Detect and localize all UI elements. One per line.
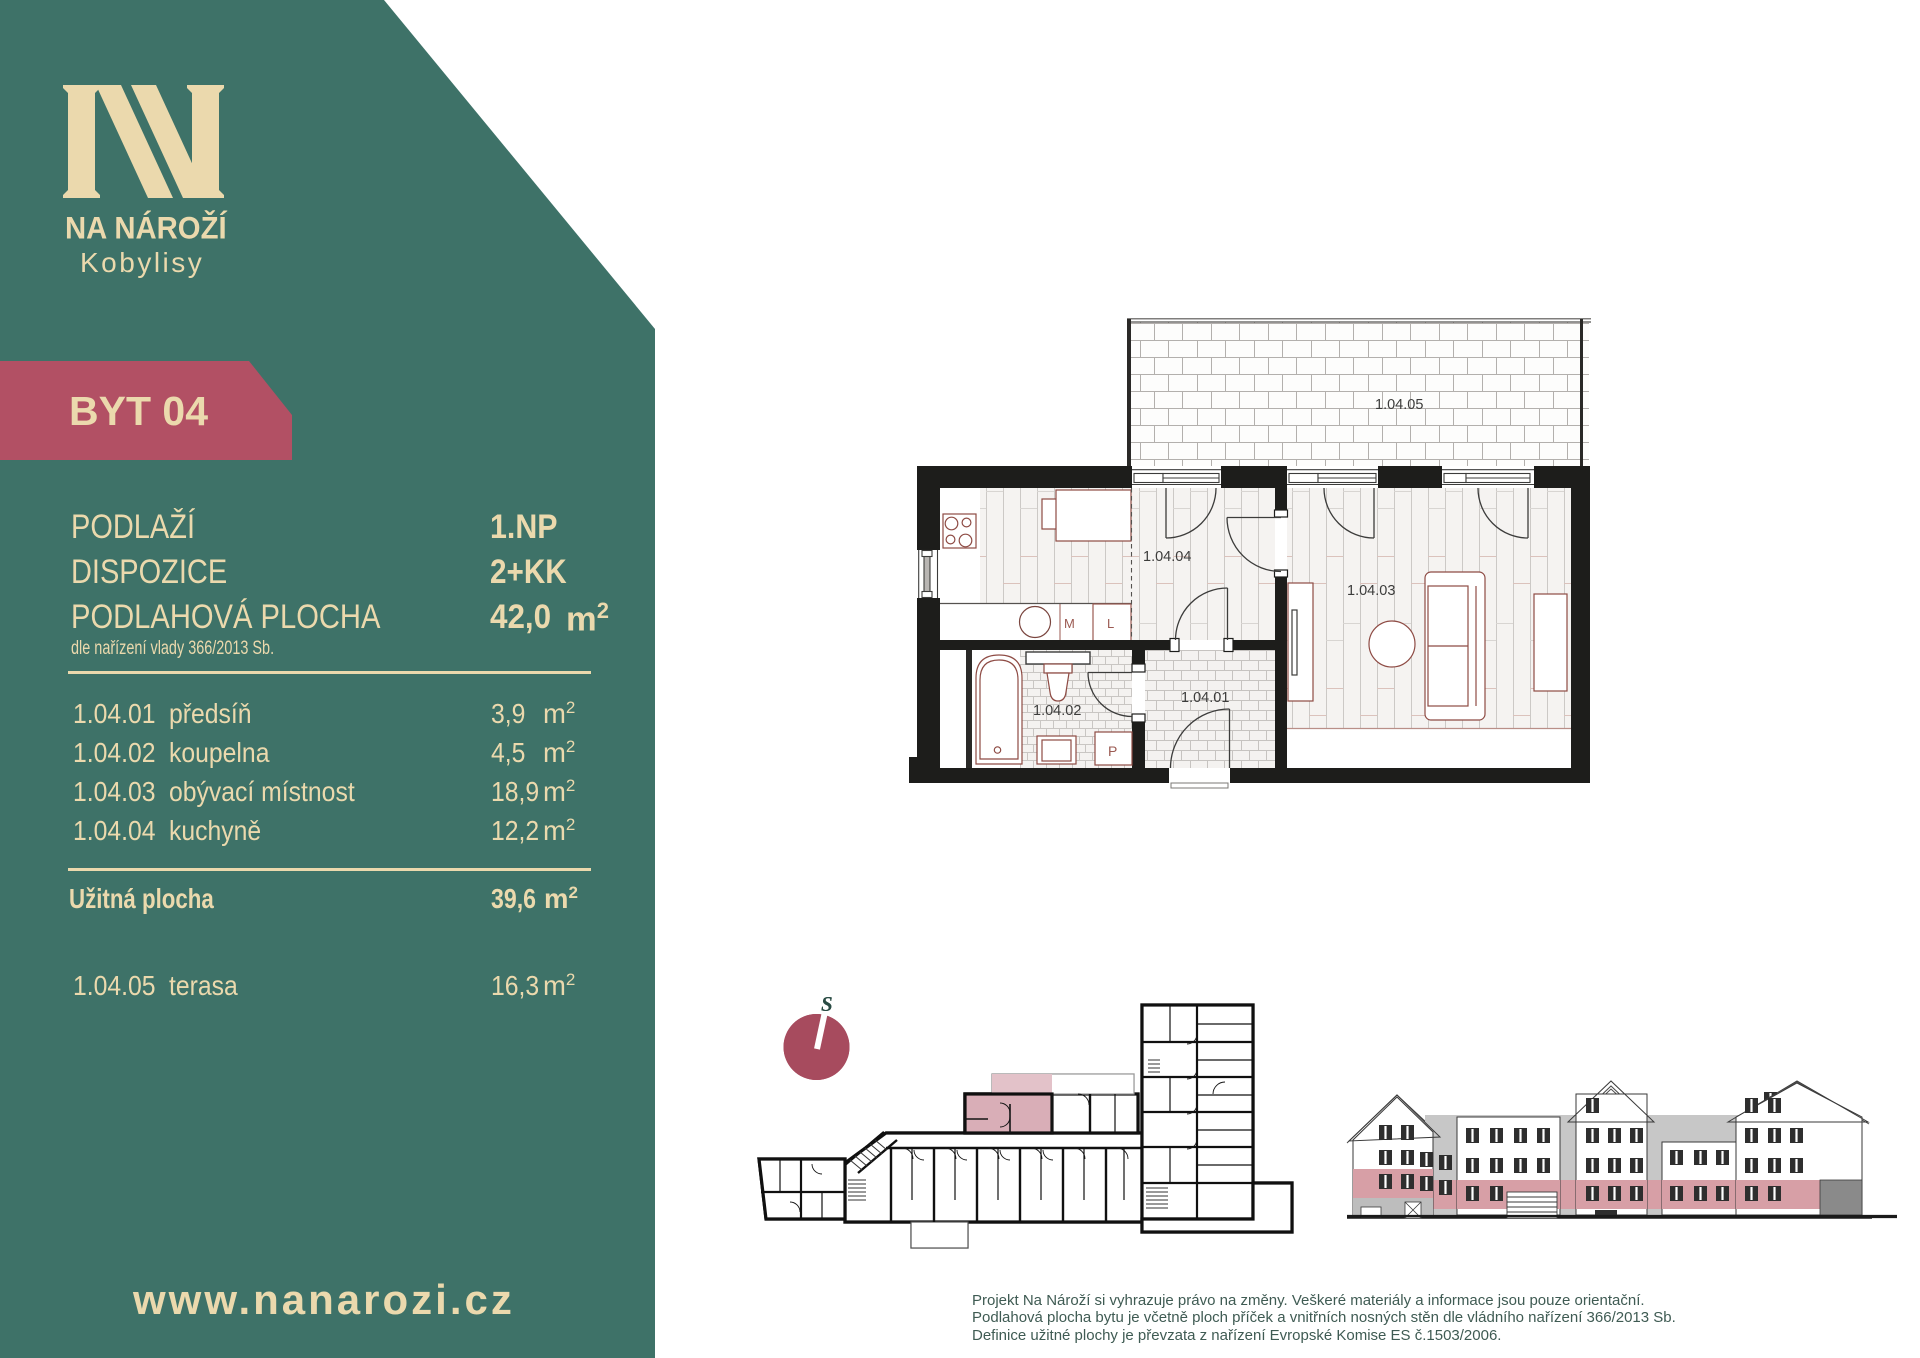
svg-text:1.04.03: 1.04.03 [1347, 583, 1395, 599]
svg-text:Kobylisy: Kobylisy [80, 247, 204, 278]
svg-text:1.04.05: 1.04.05 [1375, 397, 1423, 413]
svg-text:L: L [1107, 616, 1114, 631]
svg-text:P: P [1108, 743, 1117, 759]
svg-text:1.04.02: 1.04.02 [1033, 703, 1081, 719]
svg-text:1.04.01: 1.04.01 [1181, 690, 1229, 706]
svg-text:1.04.04: 1.04.04 [1143, 549, 1191, 565]
svg-text:M: M [1064, 616, 1075, 631]
svg-text:NA NÁROŽÍ: NA NÁROŽÍ [65, 211, 228, 246]
